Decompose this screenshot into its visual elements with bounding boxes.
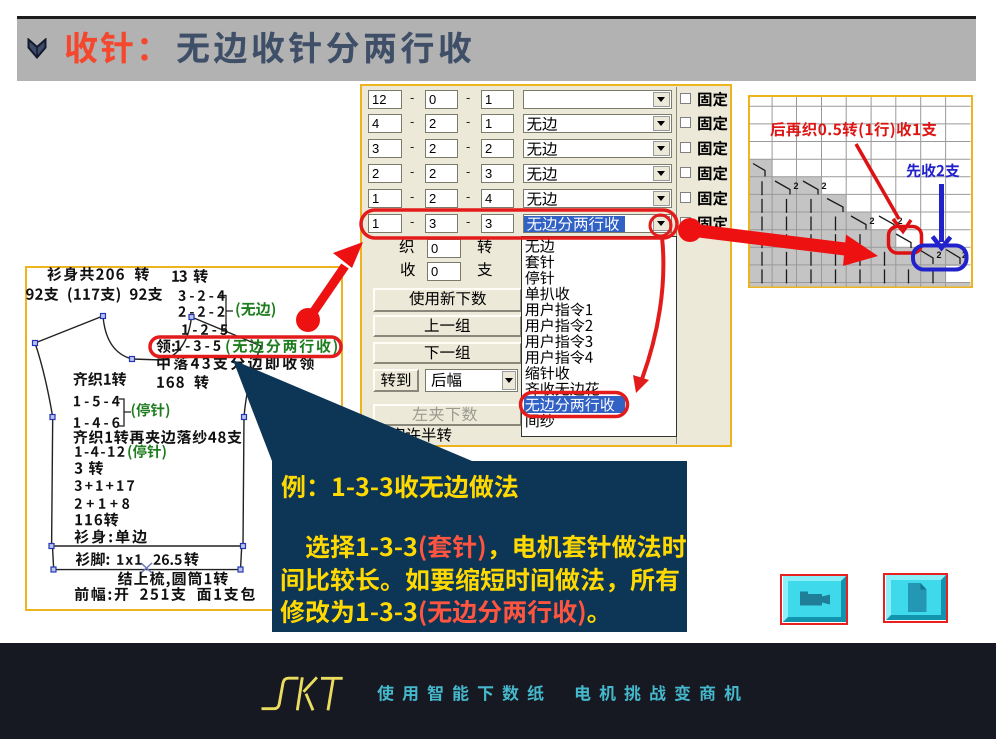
svg-text:2: 2: [870, 216, 875, 226]
svg-text:2: 2: [937, 250, 942, 260]
svg-text:2: 2: [794, 181, 799, 191]
svg-text:2: 2: [822, 181, 827, 191]
